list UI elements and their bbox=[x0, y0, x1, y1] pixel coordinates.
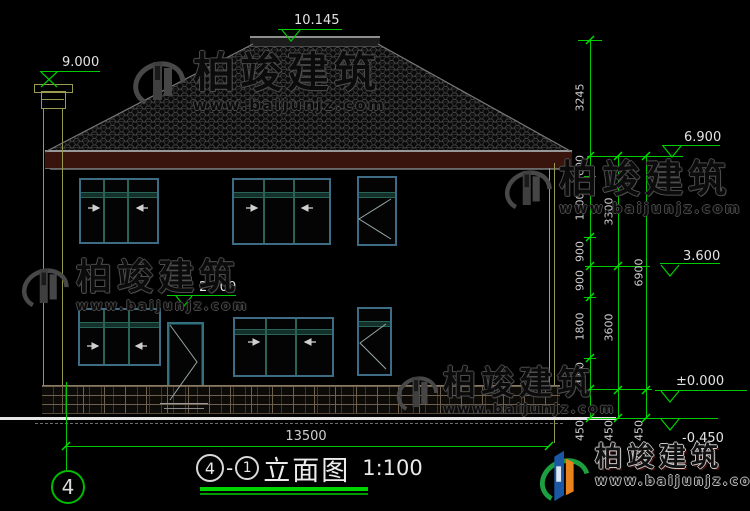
watermark-brand: 柏竣建筑 bbox=[559, 160, 742, 198]
grid-bubble-label: 4 bbox=[62, 475, 75, 499]
watermark-brand: 柏竣建筑 bbox=[193, 52, 386, 94]
watermark-bottom: 柏竣建筑 www.baijunjz.com bbox=[395, 366, 616, 418]
watermark-logo-icon bbox=[395, 366, 441, 418]
zero-elevation-label: ±0.000 bbox=[676, 374, 724, 389]
title-scale: 1:100 bbox=[362, 456, 423, 480]
watermark-url: www.baijunjz.com bbox=[443, 403, 616, 416]
title-axis-end: 1 bbox=[243, 460, 252, 476]
watermark-right: 柏竣建筑 www.baijunjz.com bbox=[503, 160, 742, 216]
grid-bubble-4: 4 bbox=[51, 470, 85, 504]
brand-name: 柏竣建筑 bbox=[595, 444, 750, 471]
watermark-url: www.baijunjz.com bbox=[559, 202, 742, 216]
chimney-elevation-label: 9.000 bbox=[62, 55, 99, 70]
dim-3245: 3245 bbox=[574, 76, 587, 120]
watermark-logo-icon bbox=[20, 260, 72, 312]
ridge-elevation-label: 10.145 bbox=[294, 13, 340, 28]
title-axis-end-circle: 1 bbox=[235, 456, 259, 480]
watermark-text: 柏竣建筑 www.baijunjz.com bbox=[76, 260, 249, 313]
dim-900: 900 bbox=[574, 259, 587, 303]
watermark-brand: 柏竣建筑 bbox=[76, 260, 249, 296]
dim-total-width: 13500 bbox=[270, 429, 342, 444]
watermark-logo-icon bbox=[131, 52, 189, 110]
brand-text: 柏竣建筑 www.baijunjz.com bbox=[595, 444, 750, 488]
watermark-logo-icon bbox=[503, 160, 555, 216]
dim-3600: 3600 bbox=[603, 306, 616, 350]
level2-elevation-label: 3.600 bbox=[683, 249, 720, 264]
title-underline-thin bbox=[200, 493, 368, 495]
watermark-url: www.baijunjz.com bbox=[76, 300, 249, 313]
cad-elevation-drawing: 10.145 9.000 6.900 3.600 2.700 ±0.000 -0… bbox=[0, 0, 750, 511]
title-axis-start: 4 bbox=[205, 459, 215, 478]
watermark-text: 柏竣建筑 www.baijunjz.com bbox=[443, 366, 616, 416]
watermark-top: 柏竣建筑 www.baijunjz.com bbox=[131, 52, 386, 113]
drawing-title: 4 - 1 立面图 1:100 bbox=[196, 451, 423, 485]
title-separator: - bbox=[226, 456, 233, 480]
brand-logo: 柏竣建筑 www.baijunjz.com bbox=[535, 444, 750, 506]
brand-url: www.baijunjz.com bbox=[595, 475, 750, 488]
watermark-brand: 柏竣建筑 bbox=[443, 366, 616, 399]
watermark-left: 柏竣建筑 www.baijunjz.com bbox=[20, 260, 249, 313]
title-axis-start-circle: 4 bbox=[196, 454, 224, 482]
watermark-url: www.baijunjz.com bbox=[193, 98, 386, 113]
title-name: 立面图 bbox=[263, 449, 350, 488]
watermark-text: 柏竣建筑 www.baijunjz.com bbox=[559, 160, 742, 216]
watermark-text: 柏竣建筑 www.baijunjz.com bbox=[193, 52, 386, 113]
title-underline-thick bbox=[200, 487, 368, 491]
eave-elevation-label: 6.900 bbox=[684, 130, 721, 145]
dim-6900: 6900 bbox=[633, 251, 646, 295]
brand-logo-icon bbox=[535, 444, 591, 506]
dim-1800: 1800 bbox=[574, 305, 587, 349]
